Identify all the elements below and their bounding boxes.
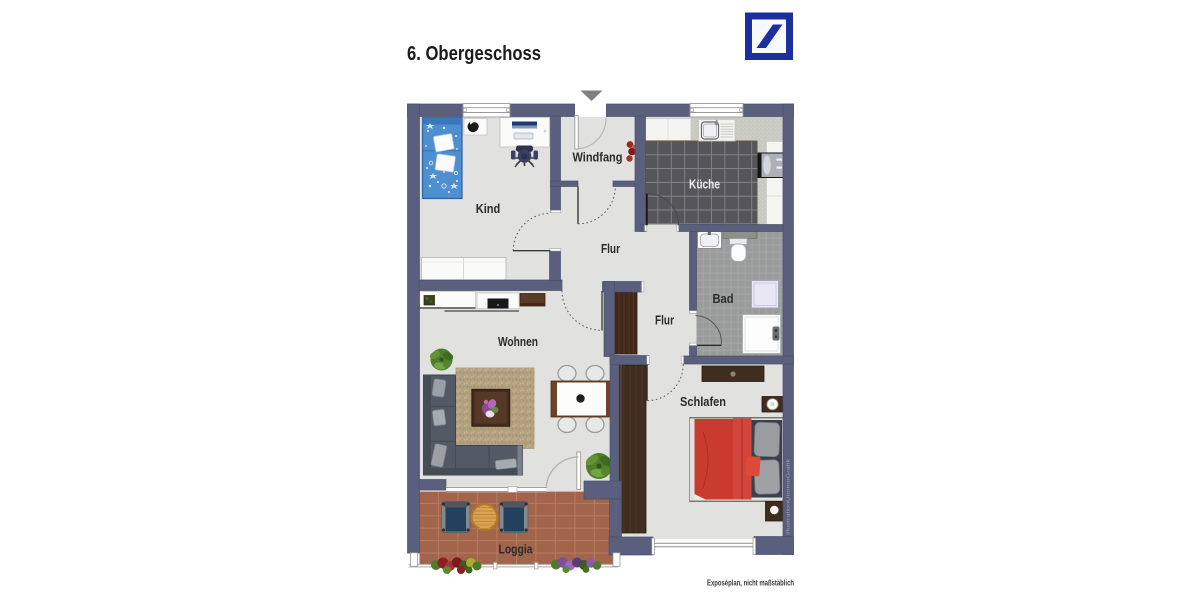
svg-text:IllustrationUImmoGrafik: IllustrationUImmoGrafik [786, 457, 791, 535]
svg-text:Flur: Flur [655, 313, 674, 328]
svg-text:Loggia: Loggia [499, 542, 534, 557]
svg-text:6. Obergeschoss: 6. Obergeschoss [407, 43, 541, 65]
svg-text:Flur: Flur [601, 241, 620, 256]
svg-text:Schlafen: Schlafen [680, 394, 726, 409]
svg-text:Küche: Küche [689, 176, 720, 191]
svg-text:Kind: Kind [476, 201, 501, 216]
svg-text:Windfang: Windfang [573, 150, 623, 165]
svg-text:Bad: Bad [713, 291, 734, 306]
svg-text:Wohnen: Wohnen [498, 334, 538, 349]
svg-text:Exposéplan, nicht maßstäblich: Exposéplan, nicht maßstäblich [707, 578, 794, 588]
